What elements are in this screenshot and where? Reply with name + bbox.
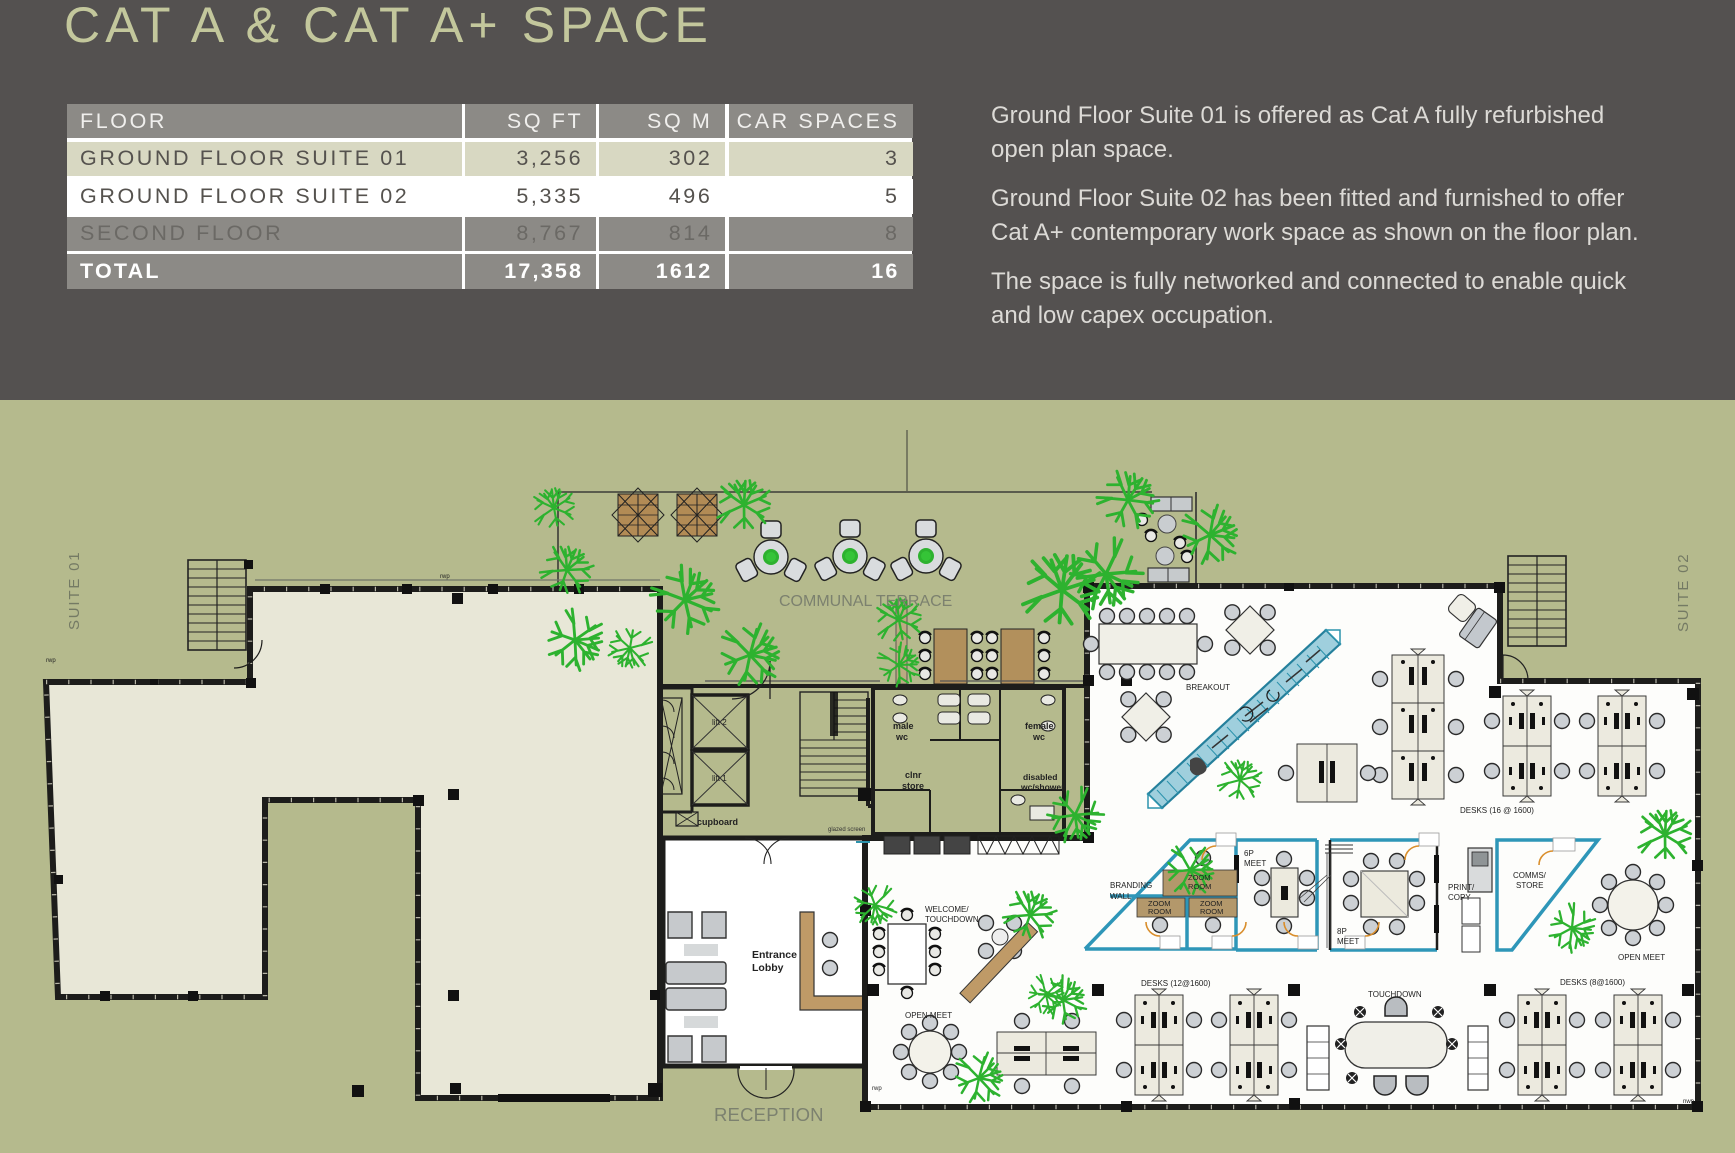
svg-text:PRINT/: PRINT/ — [1448, 883, 1475, 892]
svg-text:WELCOME/: WELCOME/ — [925, 905, 969, 914]
svg-text:OPEN MEET: OPEN MEET — [1618, 953, 1665, 962]
svg-text:OPEN MEET: OPEN MEET — [905, 1011, 952, 1020]
svg-text:nwp: nwp — [1683, 1099, 1695, 1105]
svg-text:male: male — [893, 721, 914, 731]
svg-text:store: store — [902, 781, 924, 791]
svg-text:rwp: rwp — [440, 574, 450, 580]
svg-text:Lobby: Lobby — [752, 962, 784, 974]
svg-text:wc/shower: wc/shower — [1020, 782, 1065, 792]
svg-text:DESKS (8@1600): DESKS (8@1600) — [1560, 978, 1625, 987]
svg-text:MEET: MEET — [1337, 937, 1359, 946]
svg-text:ROOM: ROOM — [1188, 882, 1211, 891]
svg-text:wc: wc — [895, 732, 908, 742]
svg-text:DESKS (16 @ 1600): DESKS (16 @ 1600) — [1460, 806, 1534, 815]
svg-text:clnr: clnr — [905, 770, 922, 780]
svg-text:TOUCHDOWN: TOUCHDOWN — [925, 915, 979, 924]
svg-text:rwp: rwp — [872, 1086, 882, 1092]
svg-text:SUITE 02: SUITE 02 — [1675, 553, 1692, 632]
svg-text:disabled: disabled — [1023, 772, 1057, 782]
svg-text:TOUCHDOWN: TOUCHDOWN — [1368, 990, 1422, 999]
svg-text:SUITE 01: SUITE 01 — [66, 551, 83, 630]
svg-text:COMMUNAL TERRACE: COMMUNAL TERRACE — [779, 593, 952, 610]
svg-text:DESKS (12@1600): DESKS (12@1600) — [1141, 979, 1211, 988]
svg-text:COPY: COPY — [1448, 893, 1471, 902]
svg-text:BREAKOUT: BREAKOUT — [1186, 683, 1230, 692]
svg-text:cupboard: cupboard — [697, 817, 738, 827]
svg-text:RECEPTION: RECEPTION — [714, 1104, 824, 1125]
svg-text:MEET: MEET — [1244, 859, 1266, 868]
svg-text:STORE: STORE — [1516, 881, 1543, 890]
svg-text:8P: 8P — [1337, 927, 1347, 936]
svg-text:ROOM: ROOM — [1148, 907, 1171, 916]
svg-text:ROOM: ROOM — [1200, 907, 1223, 916]
svg-text:WALL: WALL — [1110, 892, 1132, 901]
svg-text:Entrance: Entrance — [752, 949, 797, 961]
svg-text:wc: wc — [1032, 732, 1045, 742]
svg-text:lift 1: lift 1 — [712, 774, 727, 783]
svg-text:ZOOM: ZOOM — [1188, 873, 1211, 882]
svg-text:female: female — [1025, 721, 1054, 731]
svg-text:glazed screen: glazed screen — [828, 827, 865, 833]
svg-text:COMMS/: COMMS/ — [1513, 871, 1547, 880]
svg-text:lift 2: lift 2 — [712, 718, 727, 727]
svg-text:6P: 6P — [1244, 849, 1254, 858]
svg-text:BRANDING: BRANDING — [1110, 881, 1152, 890]
svg-text:rwp: rwp — [46, 658, 56, 664]
